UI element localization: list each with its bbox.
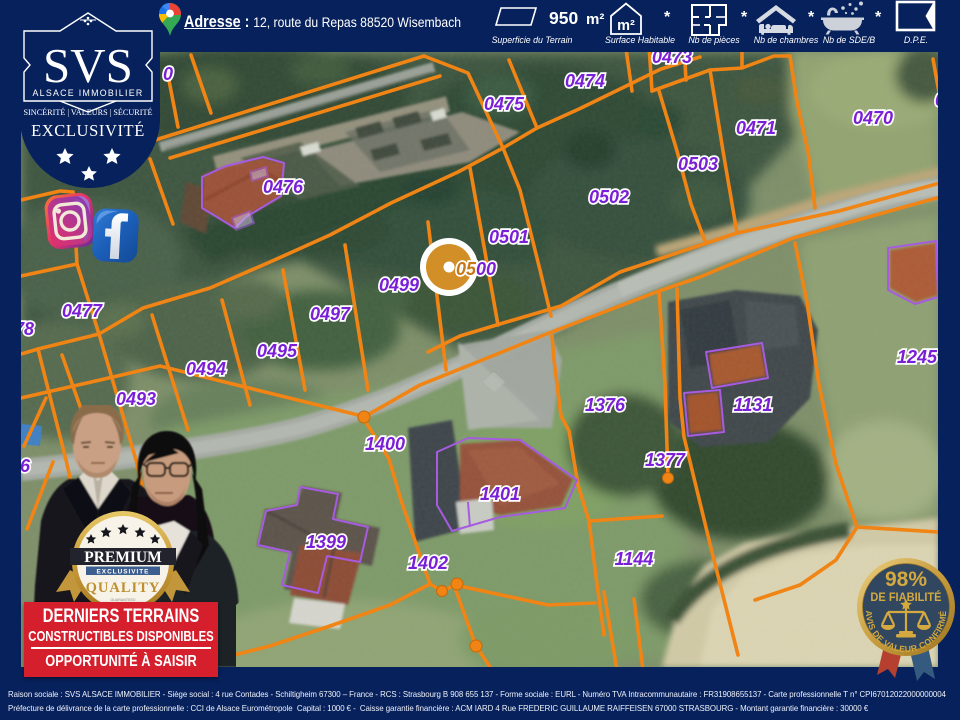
- svg-text:*: *: [741, 9, 748, 26]
- svg-text:1144: 1144: [615, 549, 654, 569]
- svg-text:1399: 1399: [306, 532, 346, 552]
- svg-text:950: 950: [549, 8, 578, 28]
- svg-text:0503: 0503: [678, 154, 718, 174]
- svg-text:0494: 0494: [186, 359, 226, 379]
- svg-text:Nb de pièces: Nb de pièces: [688, 35, 740, 45]
- svg-text:1400: 1400: [365, 434, 405, 454]
- svg-text:SINCÉRITÉ | VALEURS | SÉCURITÉ: SINCÉRITÉ | VALEURS | SÉCURITÉ: [24, 107, 153, 117]
- svg-text:1245: 1245: [897, 347, 938, 367]
- svg-text:D.P.E.: D.P.E.: [904, 35, 928, 45]
- svg-text:EXCLUSIVITÉ: EXCLUSIVITÉ: [31, 121, 145, 140]
- svg-text:1131: 1131: [734, 395, 773, 415]
- svg-text:0497: 0497: [310, 304, 351, 324]
- svg-text:0499: 0499: [379, 275, 419, 295]
- svg-text:0474: 0474: [565, 71, 605, 91]
- svg-text:0502: 0502: [589, 187, 629, 207]
- svg-text:EXCLUSIVITE: EXCLUSIVITE: [97, 569, 150, 576]
- svg-text:Nb de chambres: Nb de chambres: [754, 35, 819, 45]
- svg-text:0500: 0500: [456, 259, 496, 279]
- svg-text:1402: 1402: [408, 553, 448, 573]
- svg-text:78: 78: [21, 319, 34, 339]
- svg-text:Superficie du Terrain: Superficie du Terrain: [492, 35, 573, 45]
- svg-text:PREMIUM: PREMIUM: [84, 549, 162, 566]
- svg-text:0476: 0476: [263, 177, 304, 197]
- svg-text:SVS: SVS: [43, 38, 133, 93]
- svg-text:98%: 98%: [885, 568, 927, 591]
- svg-text:m²: m²: [617, 18, 635, 34]
- svg-text:QUALITY: QUALITY: [86, 580, 161, 596]
- svg-text:*: *: [664, 9, 671, 26]
- svg-text:*: *: [808, 9, 815, 26]
- svg-text:0501: 0501: [489, 227, 529, 247]
- svg-text:0: 0: [935, 90, 938, 110]
- svg-text:1401: 1401: [480, 484, 520, 504]
- svg-text:0470: 0470: [853, 108, 893, 128]
- svg-text:0473: 0473: [652, 52, 692, 67]
- svg-text:m²: m²: [586, 11, 604, 28]
- svg-text:0477: 0477: [62, 301, 103, 321]
- svg-text:1376: 1376: [585, 395, 626, 415]
- svg-text:Surface Habitable: Surface Habitable: [605, 35, 675, 45]
- svg-text:ALSACE IMMOBILIER: ALSACE IMMOBILIER: [32, 88, 143, 98]
- svg-text:0475: 0475: [484, 94, 525, 114]
- svg-text:0471: 0471: [736, 118, 776, 138]
- svg-text:*: *: [875, 9, 882, 26]
- svg-text:1377: 1377: [645, 450, 686, 470]
- svg-text:0495: 0495: [257, 341, 298, 361]
- svg-text:Nb de SDE/B: Nb de SDE/B: [823, 35, 875, 45]
